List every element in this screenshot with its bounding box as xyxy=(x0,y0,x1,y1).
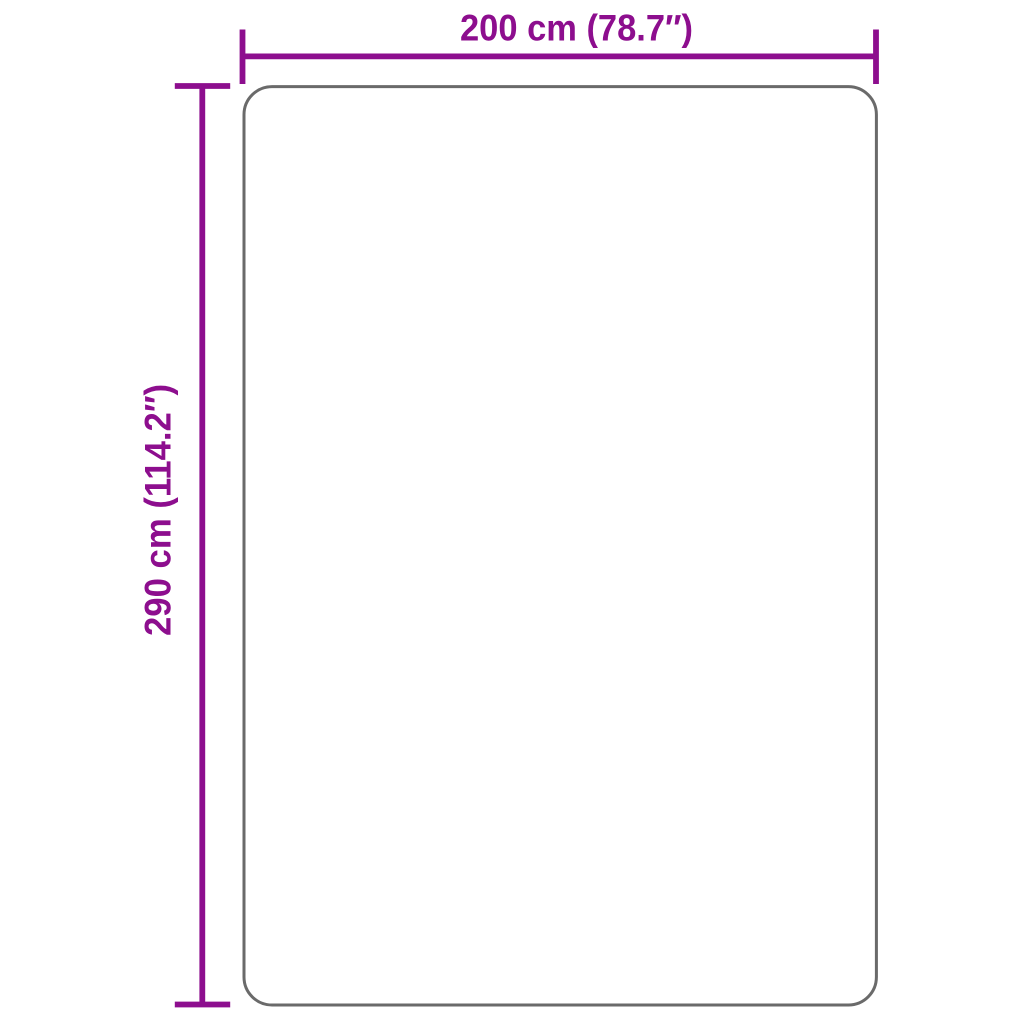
svg-text:200 cm (78.7″): 200 cm (78.7″) xyxy=(460,8,693,49)
svg-text:290 cm (114.2″): 290 cm (114.2″) xyxy=(138,384,179,636)
